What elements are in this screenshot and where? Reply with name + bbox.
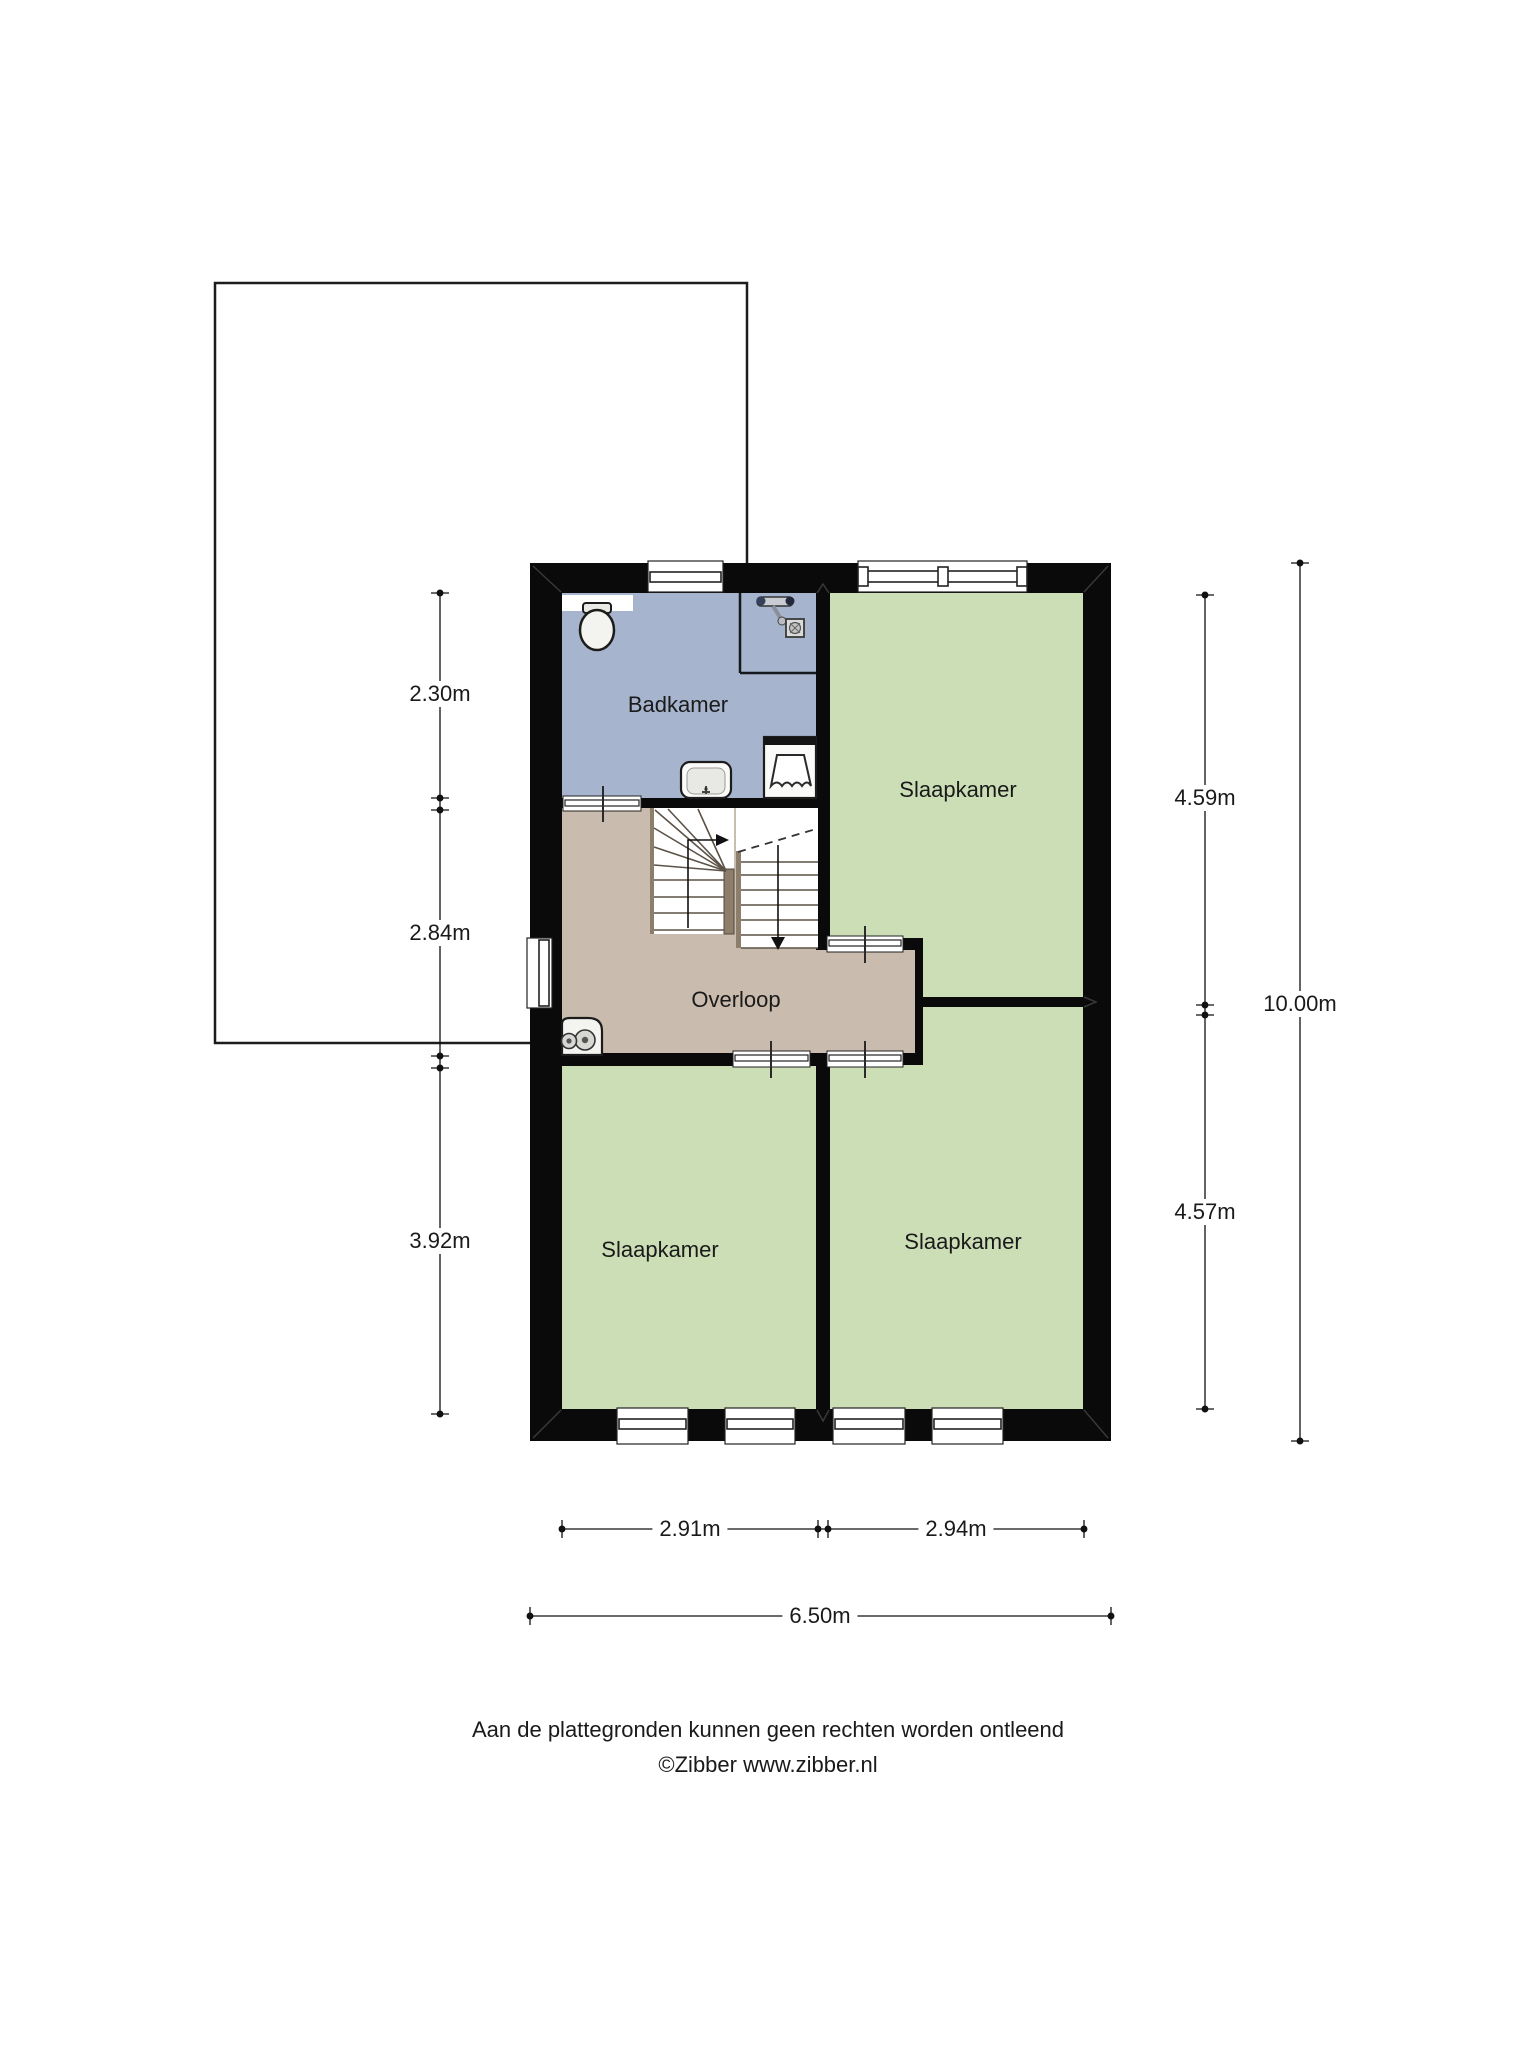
window-bottom-2: [725, 1408, 795, 1444]
toilet-icon: [580, 603, 614, 650]
dim-label-bottom-2: 2.94m: [918, 1516, 993, 1542]
stair-stringer-left: [650, 808, 654, 934]
stair-treads-down: [741, 862, 818, 948]
window-top-bathroom: [648, 561, 723, 592]
floor-plan: [527, 561, 1111, 1444]
staircase: [650, 808, 818, 950]
dim-label-right-2: 4.57m: [1167, 1199, 1242, 1225]
room-label-slaapkamer-bottom-right: Slaapkamer: [904, 1229, 1021, 1255]
stair-newel: [724, 869, 734, 934]
dim-label-left-2: 2.84m: [402, 920, 477, 946]
stair-stringer-mid: [736, 851, 741, 948]
dim-label-left-3: 3.92m: [402, 1228, 477, 1254]
room-label-slaapkamer-top-right: Slaapkamer: [899, 777, 1016, 803]
dim-label-bottom-total: 6.50m: [782, 1603, 857, 1629]
footer-copyright: ©Zibber www.zibber.nl: [658, 1752, 877, 1778]
dim-label-right-total: 10.00m: [1256, 991, 1343, 1017]
room-label-slaapkamer-bottom-left: Slaapkamer: [601, 1237, 718, 1263]
room-label-overloop: Overloop: [691, 987, 780, 1013]
dim-bottom-rooms-line: [559, 1520, 1087, 1538]
window-top-bedroom: [858, 561, 1027, 592]
floorplan-page: Badkamer Slaapkamer Overloop Slaapkamer …: [0, 0, 1536, 2048]
dim-right-rooms-line: [1196, 592, 1214, 1412]
ventilation-unit-icon: [562, 1018, 603, 1055]
window-bottom-4: [932, 1408, 1003, 1444]
dim-label-right-1: 4.59m: [1167, 785, 1242, 811]
window-bottom-1: [617, 1408, 688, 1444]
shower-drain-icon: [786, 619, 804, 637]
window-left-landing: [527, 938, 552, 1008]
footer-disclaimer: Aan de plattegronden kunnen geen rechten…: [472, 1717, 1064, 1743]
washing-machine-icon: [764, 737, 816, 798]
dim-label-bottom-1: 2.91m: [652, 1516, 727, 1542]
dim-label-left-1: 2.30m: [402, 681, 477, 707]
stair-flight-down: [736, 808, 818, 948]
washbasin-icon: [681, 762, 731, 798]
room-label-badkamer: Badkamer: [628, 692, 728, 718]
window-bottom-3: [833, 1408, 905, 1444]
